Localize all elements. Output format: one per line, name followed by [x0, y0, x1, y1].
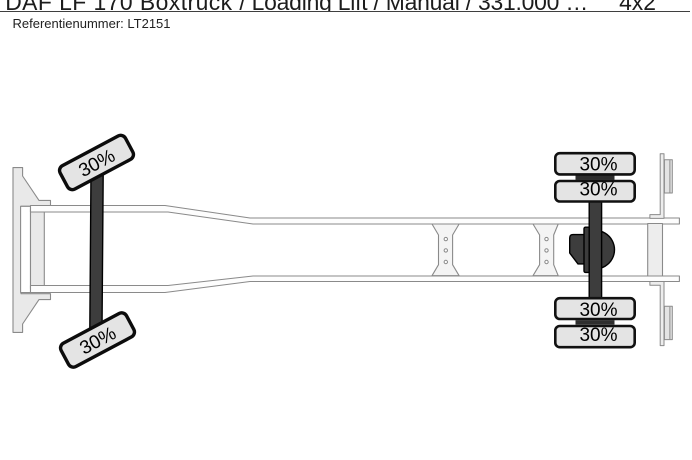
svg-text:30%: 30%	[579, 300, 617, 321]
svg-text:30%: 30%	[579, 154, 617, 175]
svg-text:30%: 30%	[579, 180, 617, 201]
svg-text:30%: 30%	[579, 325, 617, 346]
